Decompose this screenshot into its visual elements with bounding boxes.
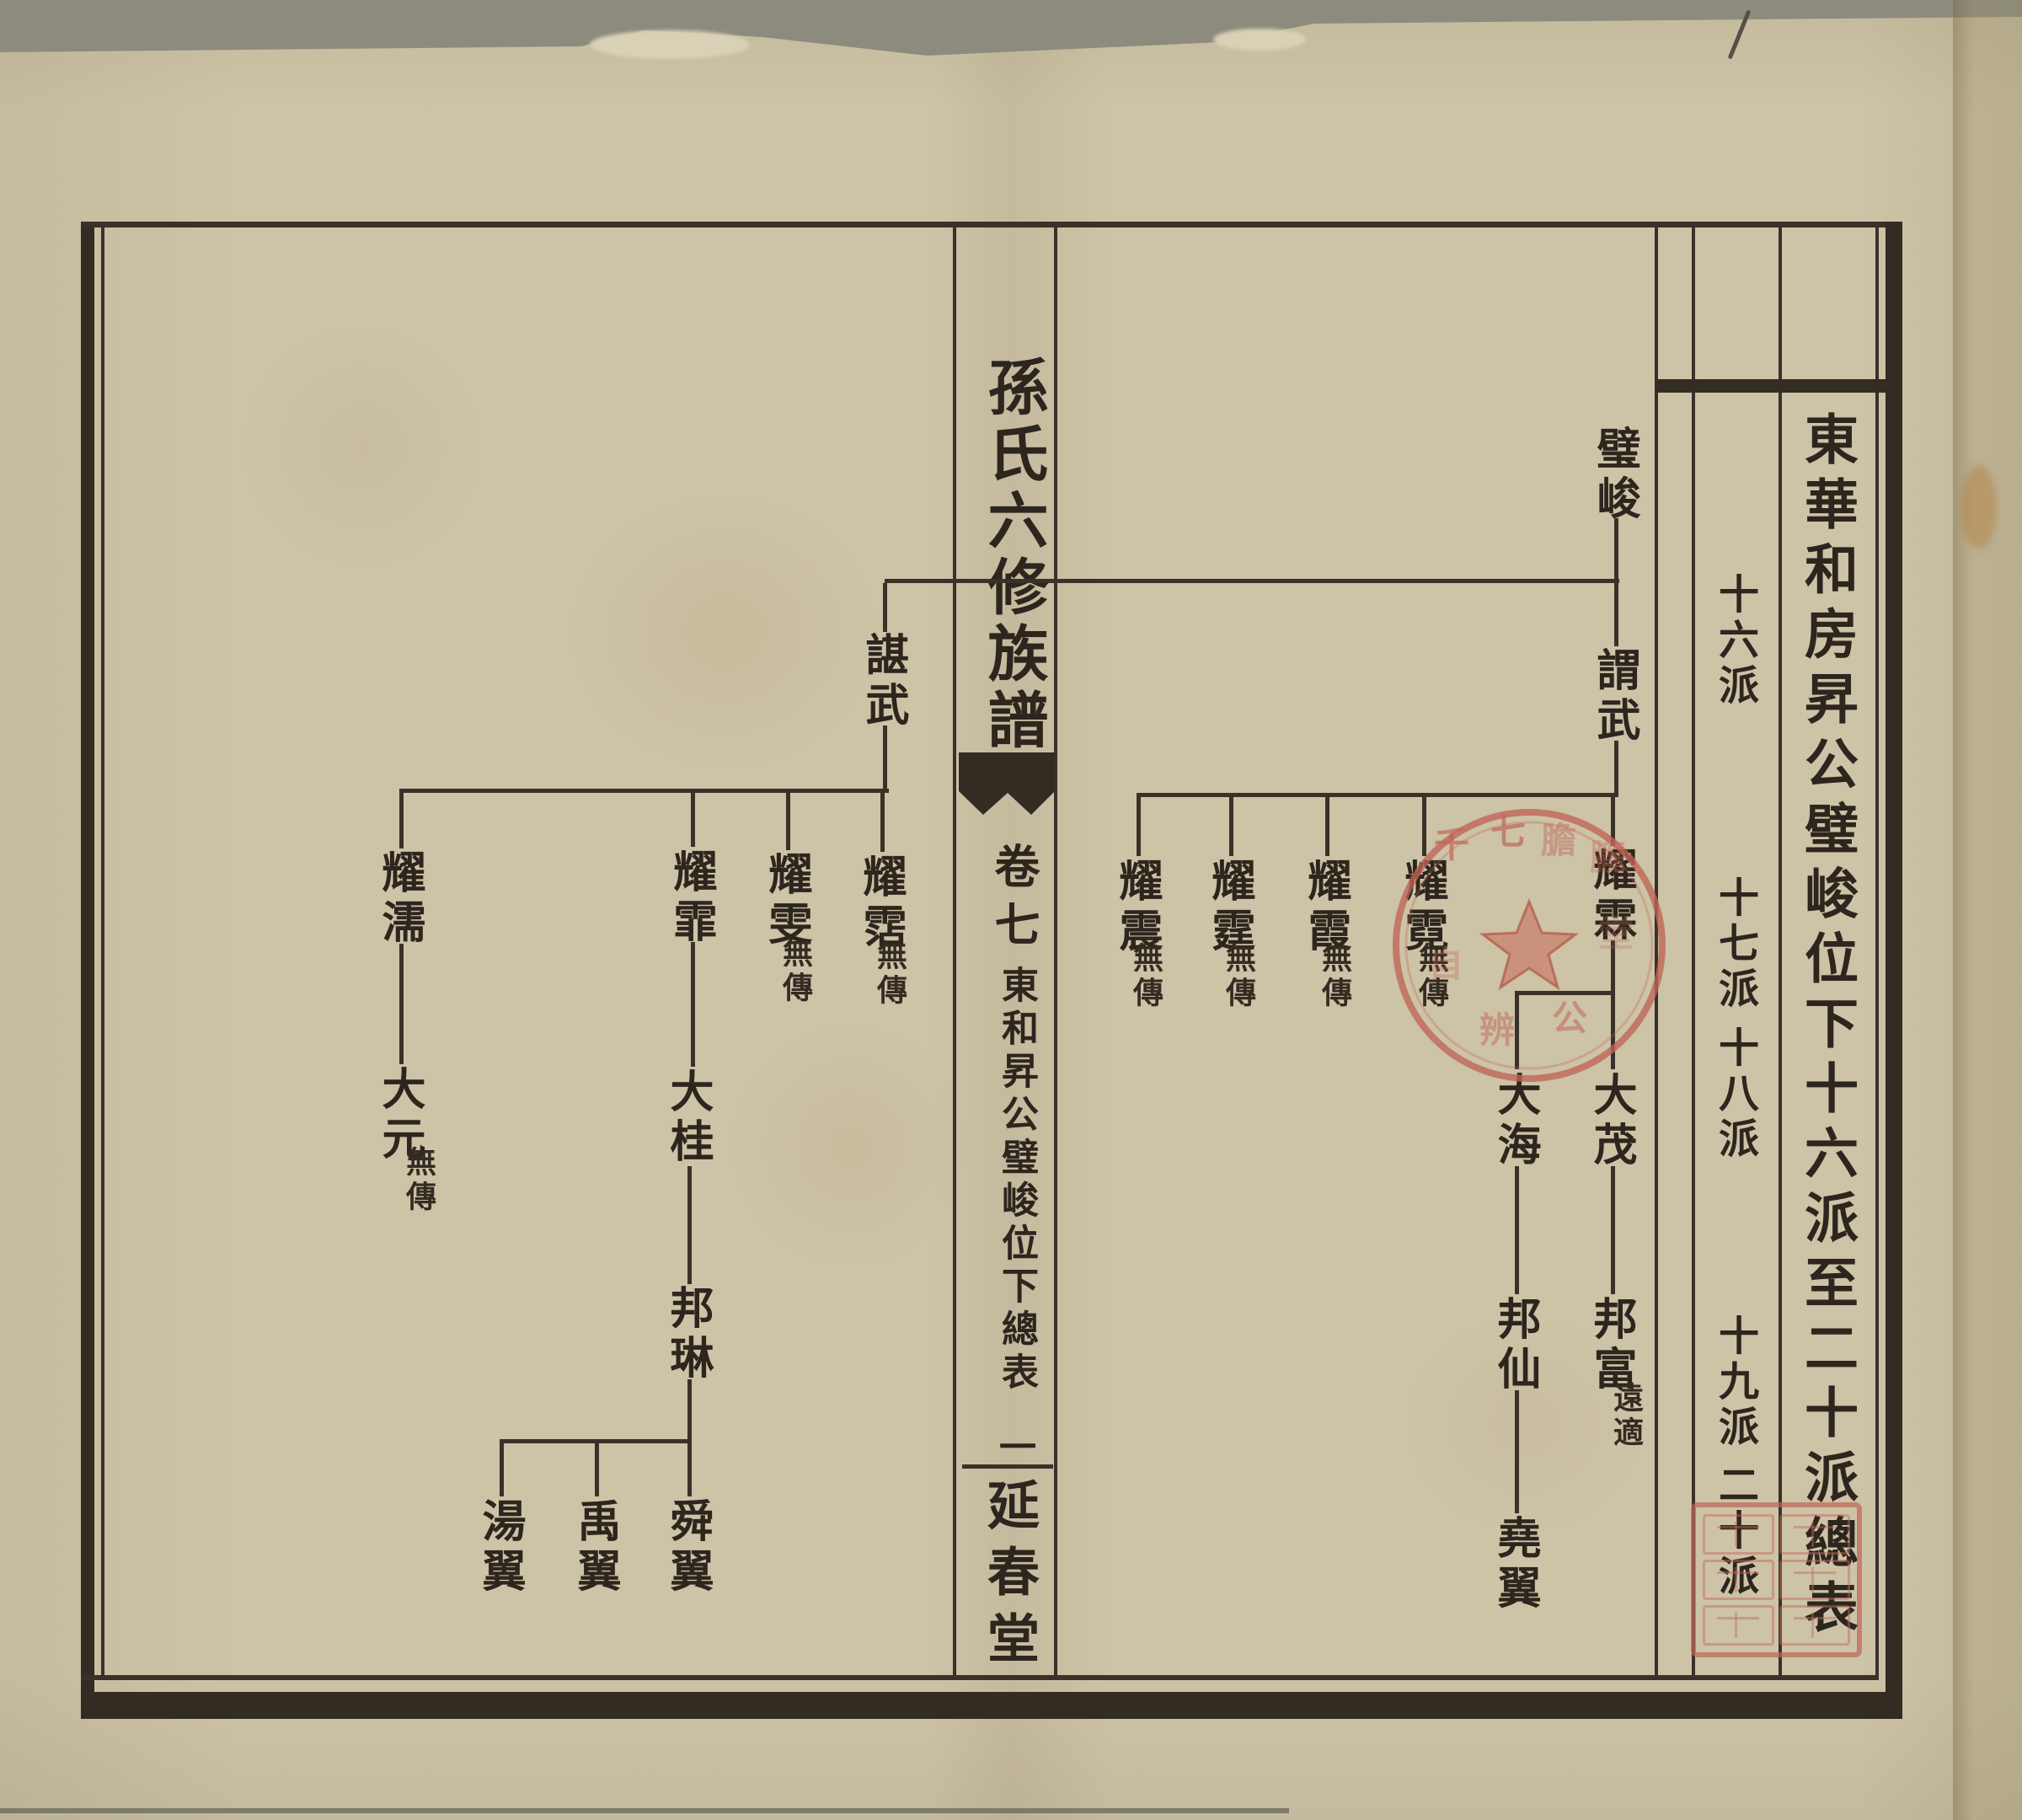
seal-ring-glyph: 堂 [1598,906,1634,957]
paper-stain-blotch [1961,465,1997,549]
tree-connector [687,1166,692,1284]
seal-ring-glyph: 公 [1552,990,1587,1041]
tree-node-weiwu: 謂武 [1592,647,1636,747]
frame-bottom-outer [81,1692,1902,1719]
seal-ring-glyph: 千 [1434,816,1469,868]
tree-connector [1611,1166,1615,1294]
tree-node-yaozhan-note: 無傳 [875,939,905,1009]
tree-node-yaoru: 耀濡 [377,849,421,949]
seal-ring-glyph: 朧 [1590,829,1625,881]
tree-connector [500,1443,504,1496]
tree-connector [880,793,885,852]
tree-connector [687,1379,692,1442]
tree-node-bijun: 璧峻 [1592,426,1636,525]
spine-book-title: 孫氏六修族譜 [982,356,1043,755]
tree-node-yaozhan: 耀霑 [859,854,902,953]
title-box-top-bar [1655,379,1887,393]
tree-node-yuyi: 禹翼 [573,1498,617,1598]
seal-glyph-cell [1703,1560,1774,1600]
tree-connector [1614,518,1618,583]
torn-paper-edge-highlight [590,30,750,59]
tree-connector [595,1443,599,1496]
tree-connector [1325,797,1329,856]
tree-connector [883,583,887,632]
tree-connector [691,942,695,1067]
frame-left-outer [81,222,94,1719]
tree-node-yaoting-note: 無傳 [1223,942,1254,1011]
rightpage-divider-rule-2 [1692,222,1695,1677]
generation-label-16: 十六派 [1714,573,1755,709]
tree-connector [1614,583,1618,646]
frame-top [81,222,1901,227]
tree-node-shunyi: 舜翼 [666,1498,709,1598]
tree-connector [1515,1390,1519,1513]
tree-node-yaoxia-note: 無傳 [1319,942,1350,1011]
rightpage-divider-rule-3 [1779,222,1782,1677]
tree-node-yaowen-note: 無傳 [780,937,810,1006]
page-title: 東華和房昇公璧峻位下十六派至二十派總表 [1800,411,1853,1644]
tree-connector [1137,797,1141,856]
tree-node-bangfu-note: 遠適 [1611,1382,1641,1451]
tree-node-bangxian: 邦仙 [1493,1296,1537,1395]
page-edge-shadow [1953,0,2022,1820]
spine-volume: 卷七 [991,843,1036,959]
frame-right-outer [1886,222,1902,1719]
star-icon [1483,902,1575,988]
fishtail-ornament [959,752,1056,820]
tree-node-yaofei: 耀霏 [669,848,713,948]
spine-divider-line [962,1464,1053,1469]
tree-node-tangyi: 湯翼 [478,1498,522,1598]
tree-connector [885,579,1619,583]
generation-label-17: 十七派 [1714,876,1755,1013]
genealogy-scan-page: 孫氏六修族譜 卷七 東和昇公璧峻位下總表 一 延春堂 東華和房昇公璧峻位下十六派… [0,0,2022,1820]
seal-glyph-cell [1703,1605,1774,1646]
tree-node-chenwu: 諶武 [861,632,905,731]
torn-paper-edge-highlight [1213,29,1306,51]
seal-glyph-cell [1779,1605,1851,1646]
tree-node-yaozhen-note: 無傳 [1131,942,1161,1011]
tree-connector [1229,797,1233,856]
tree-connector [786,793,790,850]
seal-glyph-cell [1703,1514,1774,1555]
tree-node-dayuan-note: 無傳 [404,1146,434,1215]
tree-connector [1137,793,1618,797]
seal-ring-glyph: 七 [1490,804,1526,855]
tree-node-yaoyi: 堯翼 [1493,1515,1537,1614]
tree-connector [687,1443,692,1496]
seal-ring-glyph: 膽 [1541,812,1576,864]
spine-section-title: 東和昇公璧峻位下總表 [998,966,1035,1395]
tree-connector [1614,741,1618,796]
seal-ring-glyph: 辨 [1479,1002,1515,1053]
tree-connector [883,725,887,791]
tree-connector [399,944,404,1064]
tree-connector [1515,1166,1519,1294]
frame-right-inner [1875,222,1879,1677]
tree-connector [691,793,695,847]
seal-glyph-cell [1779,1514,1851,1555]
tree-connector [399,793,404,848]
generation-label-19: 十九派 [1714,1314,1755,1451]
tree-connector [399,789,889,793]
generation-label-18: 十八派 [1714,1026,1755,1163]
spine-right-rule [1054,222,1057,1677]
seal-ring-glyph: 自 [1428,936,1463,988]
tree-node-banglin: 邦琳 [666,1285,709,1384]
tree-node-bangfu: 邦富 [1589,1296,1633,1395]
spine-hall-name: 延春堂 [982,1478,1035,1678]
tree-node-dagui: 大桂 [666,1068,709,1168]
frame-left-inner [101,222,104,1677]
square-collection-seal [1691,1502,1862,1657]
spine-left-rule [953,222,956,1677]
scan-bottom-line [0,1808,1289,1813]
seal-glyph-cell [1779,1560,1851,1600]
tree-node-yaowen: 耀雯 [764,851,808,950]
spine-page-number: 一 [995,1427,1032,1464]
